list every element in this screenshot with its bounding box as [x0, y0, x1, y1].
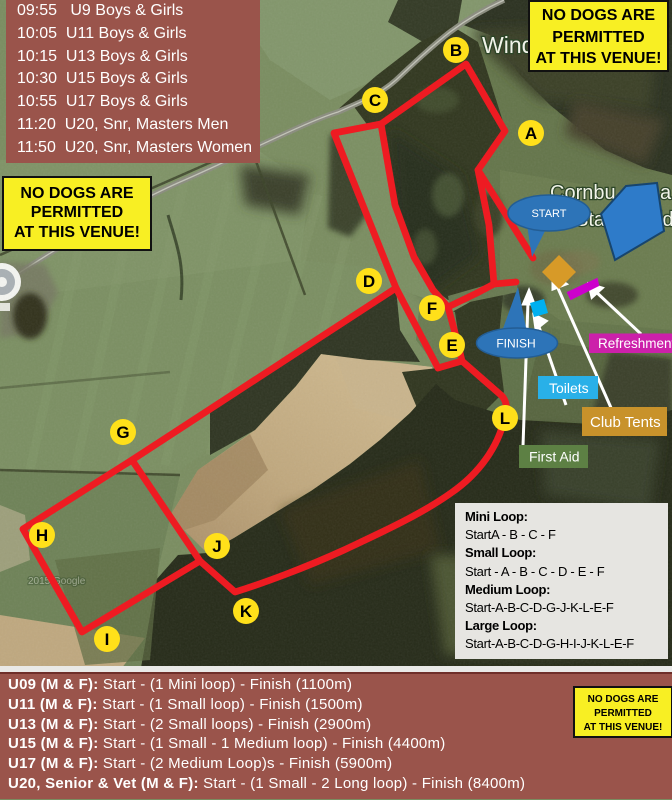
- svg-text:G: G: [116, 423, 129, 442]
- svg-text:L: L: [500, 409, 510, 428]
- svg-text:H: H: [36, 526, 48, 545]
- svg-text:A: A: [525, 124, 537, 143]
- svg-text:Club Tents: Club Tents: [590, 414, 661, 431]
- svg-text:D: D: [363, 272, 375, 291]
- svg-text:First Aid: First Aid: [529, 449, 580, 465]
- svg-text:a: a: [660, 182, 672, 204]
- svg-text:K: K: [240, 602, 253, 621]
- svg-text:Wind: Wind: [482, 32, 534, 58]
- svg-text:Toilets: Toilets: [549, 380, 589, 396]
- svg-text:I: I: [105, 630, 110, 649]
- svg-text:START: START: [531, 208, 566, 220]
- svg-text:J: J: [212, 537, 221, 556]
- svg-text:F: F: [427, 299, 437, 318]
- svg-text:B: B: [450, 41, 462, 60]
- svg-text:E: E: [446, 336, 457, 355]
- svg-text:Refreshments: Refreshments: [598, 336, 672, 351]
- svg-text:C: C: [369, 91, 381, 110]
- svg-text:FINISH: FINISH: [496, 337, 535, 351]
